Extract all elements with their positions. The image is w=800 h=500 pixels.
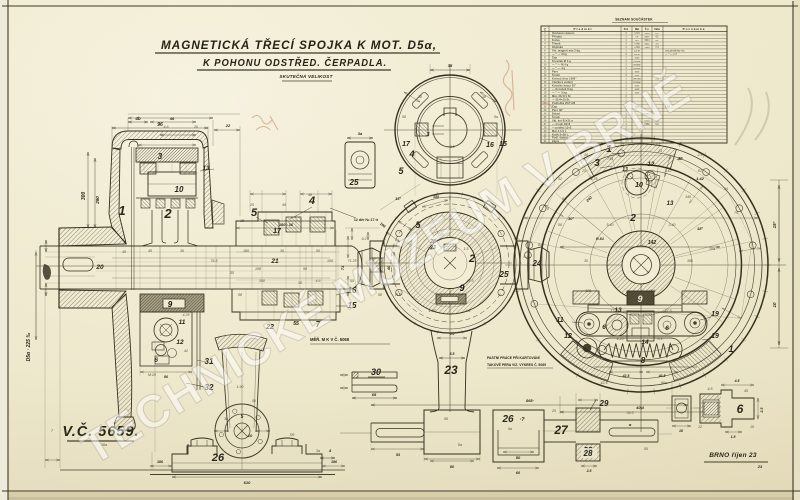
svg-text:180 - 36: 180 - 36: [279, 223, 294, 227]
svg-text:Podložka 25/7×28: Podložka 25/7×28: [552, 101, 576, 105]
svg-text:96: 96: [157, 122, 163, 128]
svg-text:mosaz: mosaz: [633, 65, 641, 67]
svg-text:feroda: feroda: [633, 79, 641, 81]
svg-text:10: 10: [635, 182, 643, 189]
svg-text:76.5: 76.5: [211, 259, 218, 263]
svg-text:34: 34: [724, 187, 728, 191]
svg-text:27: 27: [553, 423, 569, 437]
svg-text:13: 13: [667, 201, 674, 207]
svg-text:2.5: 2.5: [760, 408, 764, 414]
svg-text:65: 65: [372, 392, 377, 397]
svg-text:3: 3: [426, 132, 429, 138]
svg-text:290: 290: [95, 196, 100, 205]
svg-text:9: 9: [168, 300, 173, 309]
svg-text:610: 610: [244, 480, 251, 485]
svg-text:3.40: 3.40: [669, 223, 676, 227]
svg-text:2.25: 2.25: [590, 177, 598, 181]
svg-text:4.2: 4.2: [466, 309, 471, 313]
svg-text:Poč: Poč: [624, 28, 629, 31]
svg-text:300: 300: [81, 192, 87, 201]
svg-text:Kolečko hnací 30ʺ: Kolečko hnací 30ʺ: [552, 83, 577, 87]
svg-text:Objímka: Objímka: [552, 45, 563, 49]
svg-text:— ″ — M 4 g: — ″ — M 4 g: [552, 63, 569, 67]
svg-text:19: 19: [711, 333, 719, 340]
svg-text:6: 6: [665, 325, 669, 332]
svg-text:13: 13: [622, 167, 628, 173]
svg-text:1.42: 1.42: [696, 176, 705, 181]
svg-text:26: 26: [501, 414, 514, 425]
svg-text:50: 50: [316, 249, 320, 253]
svg-text:58: 58: [558, 223, 562, 227]
svg-text:Držad: Držad: [552, 111, 560, 115]
svg-text:6.4: 6.4: [658, 337, 663, 341]
svg-text:SEZNAM SOUČÁSTEK: SEZNAM SOUČÁSTEK: [615, 17, 653, 22]
svg-text:mosaz: mosaz: [633, 61, 641, 63]
svg-text:R.81: R.81: [596, 237, 604, 241]
svg-text:70: 70: [734, 211, 738, 215]
svg-text:40|4: 40|4: [635, 405, 645, 410]
svg-text:š litá: š litá: [634, 43, 640, 46]
svg-text:23: 23: [443, 363, 458, 377]
svg-text:Příruba: Příruba: [552, 35, 562, 39]
svg-text:BRNO říjen 23: BRNO říjen 23: [709, 452, 757, 459]
svg-text:4.5: 4.5: [734, 379, 740, 383]
svg-text:ocel: ocel: [635, 75, 640, 77]
svg-text:Předmět: Předmět: [573, 27, 592, 31]
svg-text:PASTNÍ PRÁCE PŘI KARTOVÁNÍ: PASTNÍ PRÁCE PŘI KARTOVÁNÍ: [487, 355, 541, 360]
svg-text:36.5: 36.5: [627, 411, 634, 415]
svg-text:17: 17: [402, 141, 411, 148]
svg-text:8a: 8a: [458, 443, 462, 447]
svg-text:12: 12: [698, 425, 702, 429]
svg-text:19: 19: [711, 311, 719, 318]
svg-text:4b: 4b: [134, 116, 141, 121]
svg-text:Vložka k vedení: Vložka k vedení: [552, 80, 573, 84]
svg-text:18°: 18°: [697, 226, 703, 231]
svg-text:1: 1: [728, 344, 733, 354]
svg-text:Fe l: Fe l: [635, 40, 639, 42]
svg-text:mosaz: mosaz: [633, 68, 641, 70]
svg-text:4: 4: [408, 149, 414, 159]
svg-text:— ″ — 3 kg: — ″ — 3 kg: [552, 52, 567, 56]
svg-text:Cu-dr: Cu-dr: [634, 51, 640, 53]
svg-text:ocel: ocel: [635, 72, 640, 74]
svg-text:4.5: 4.5: [656, 143, 661, 147]
svg-text:47.5: 47.5: [649, 289, 656, 293]
svg-text:15: 15: [499, 141, 507, 148]
svg-text:180: 180: [243, 249, 249, 253]
svg-text:12 děr № 17 tr: 12 děr № 17 tr: [354, 218, 379, 222]
svg-text:— ″ — 3 kg: — ″ — 3 kg: [552, 90, 567, 94]
svg-text:46: 46: [169, 116, 175, 121]
svg-text:Mat: Mat: [635, 28, 639, 31]
svg-text:20: 20: [193, 125, 198, 129]
svg-text:3a: 3a: [358, 131, 363, 136]
svg-text:2: 2: [629, 213, 636, 224]
svg-text:10: 10: [248, 433, 253, 438]
svg-text:55: 55: [644, 447, 648, 451]
svg-text:Č.v.: Č.v.: [645, 28, 650, 31]
svg-text:9.2: 9.2: [362, 237, 367, 241]
svg-text:ocel: ocel: [635, 58, 640, 60]
svg-text:Váha: Váha: [654, 29, 660, 31]
svg-text:6: 6: [602, 324, 606, 331]
svg-text:45: 45: [148, 249, 152, 253]
svg-text:Mat. 31/4×1 St: Mat. 31/4×1 St: [552, 94, 571, 98]
svg-text:95: 95: [444, 417, 448, 421]
svg-text:2: 2: [468, 253, 475, 265]
svg-text:36: 36: [280, 249, 284, 253]
svg-text:Vin. magnet min 2 kg: Vin. magnet min 2 kg: [552, 49, 580, 53]
svg-text:15°: 15°: [772, 221, 777, 228]
svg-text:D5α · 225 ‰: D5α · 225 ‰: [26, 333, 32, 362]
svg-text:4.5: 4.5: [708, 387, 713, 391]
svg-text:TAKOVÉ PERA VIZ. VÝKRES Č. 506: TAKOVÉ PERA VIZ. VÝKRES Č. 5069: [487, 362, 546, 367]
svg-text:Kotouč třecí 1500ʺ: Kotouč třecí 1500ʺ: [552, 77, 577, 81]
svg-text:47.5: 47.5: [467, 279, 474, 283]
svg-text:30: 30: [584, 259, 588, 263]
svg-text:2.8: 2.8: [697, 153, 703, 157]
svg-text:M.20: M.20: [148, 373, 156, 377]
svg-text:R2: R2: [698, 169, 702, 173]
svg-text:2: 2: [163, 206, 172, 221]
svg-text:30°: 30°: [568, 217, 574, 221]
svg-text:1.5: 1.5: [731, 435, 736, 439]
svg-text:26: 26: [211, 452, 225, 464]
svg-text:11: 11: [179, 319, 186, 326]
svg-text:9: 9: [637, 294, 642, 304]
svg-text:·?: ·?: [519, 417, 525, 423]
svg-text:12: 12: [564, 333, 572, 340]
svg-text:42.5: 42.5: [601, 381, 608, 385]
svg-text:36: 36: [180, 249, 184, 253]
svg-text:340: 340: [685, 195, 691, 199]
svg-text:0.4: 0.4: [524, 255, 529, 259]
svg-text:46: 46: [282, 203, 286, 207]
svg-text:20: 20: [95, 264, 104, 271]
svg-text:13: 13: [203, 166, 210, 172]
svg-text:6: 6: [737, 402, 744, 416]
svg-text:2.5: 2.5: [586, 469, 592, 473]
svg-text:28: 28: [583, 449, 593, 458]
svg-text:58: 58: [238, 293, 242, 297]
svg-text:5628: 5628: [644, 47, 650, 49]
svg-text:60a: 60a: [661, 381, 667, 385]
svg-text:6: 6: [154, 357, 158, 364]
svg-text:6a: 6a: [508, 427, 512, 431]
svg-text:MAGNETICKÁ TŘECÍ SPOJKA K MOT.: MAGNETICKÁ TŘECÍ SPOJKA K MOT. D5α,: [161, 39, 437, 52]
svg-text:186: 186: [157, 460, 164, 464]
svg-text:42: 42: [184, 349, 188, 353]
svg-text:47.5: 47.5: [665, 309, 672, 313]
svg-text:3a: 3a: [224, 417, 228, 421]
svg-text:Pero 38ʺ: Pero 38ʺ: [552, 108, 564, 112]
svg-text:4.6: 4.6: [164, 125, 169, 129]
svg-text:15: 15: [750, 425, 754, 429]
svg-text:16: 16: [486, 142, 494, 149]
svg-text:5614: 5614: [644, 39, 650, 42]
svg-text:360: 360: [687, 259, 693, 263]
svg-text:58: 58: [402, 115, 406, 119]
svg-text:1.42: 1.42: [665, 169, 672, 173]
svg-text:4.25: 4.25: [617, 337, 624, 341]
svg-text:10: 10: [772, 302, 777, 308]
svg-text:40.5: 40.5: [658, 374, 666, 378]
svg-text:108: 108: [255, 267, 261, 271]
svg-text:8: 8: [641, 356, 646, 365]
svg-text:5.0: 5.0: [450, 332, 455, 336]
svg-text:1: 1: [118, 203, 125, 218]
svg-text:50: 50: [516, 455, 521, 460]
svg-text:25: 25: [349, 178, 359, 187]
svg-text:Kotva: Kotva: [552, 38, 560, 42]
svg-text:12: 12: [648, 162, 655, 168]
svg-text:5.5: 5.5: [450, 352, 455, 356]
svg-text:12: 12: [176, 339, 184, 346]
svg-text:4.25: 4.25: [429, 309, 436, 313]
svg-text:— ″ — 4 g: — ″ — 4 g: [552, 66, 566, 70]
svg-text:11: 11: [556, 317, 563, 324]
svg-text:Ozubené rameno: Ozubené rameno: [552, 31, 575, 35]
svg-text:5.40: 5.40: [607, 223, 614, 227]
svg-text:13: 13: [658, 149, 662, 153]
svg-text:25: 25: [499, 270, 509, 279]
svg-text:50: 50: [252, 399, 256, 403]
svg-text:š 6.0: š 6.0: [634, 32, 640, 35]
svg-text:Cu-dr: Cu-dr: [634, 54, 640, 56]
svg-text:15: 15: [240, 219, 244, 223]
svg-text:55: 55: [230, 271, 234, 275]
svg-text:5a: 5a: [494, 115, 498, 119]
svg-text:21: 21: [270, 258, 279, 265]
svg-text:Pero: Pero: [552, 70, 558, 74]
svg-text:— Kroužek 8 kg: — Kroužek 8 kg: [552, 87, 573, 91]
svg-text:23: 23: [757, 464, 763, 469]
svg-text:5621: 5621: [644, 44, 650, 46]
svg-text:17: 17: [273, 228, 282, 235]
svg-text:45: 45: [744, 389, 748, 393]
svg-text:SR: SR: [290, 433, 295, 437]
svg-text:R.5: R.5: [395, 293, 400, 297]
svg-text:9: 9: [459, 283, 464, 293]
svg-text:425: 425: [585, 289, 591, 293]
svg-text:15°: 15°: [395, 196, 401, 201]
svg-text:5607: 5607: [644, 37, 650, 39]
svg-text:š litá: š litá: [634, 46, 640, 49]
svg-text:18: 18: [679, 429, 683, 433]
svg-text:3a: 3a: [316, 449, 320, 453]
svg-text:98: 98: [303, 267, 307, 271]
svg-text:186: 186: [331, 460, 338, 464]
svg-text:4.25: 4.25: [183, 313, 190, 317]
svg-text:SKUTEČNÁ VELIKOST: SKUTEČNÁ VELIKOST: [279, 72, 333, 79]
svg-text:K POHONU ODSTŘED. ČERPADLA.: K POHONU ODSTŘED. ČERPADLA.: [203, 56, 387, 69]
svg-text:— ″ — č 2: — ″ — č 2: [665, 53, 677, 56]
svg-text:Třmeň: Třmeň: [552, 42, 561, 46]
svg-text:42.5: 42.5: [622, 374, 630, 378]
svg-text:38: 38: [482, 95, 486, 99]
svg-text:3: 3: [158, 152, 163, 161]
svg-text:10: 10: [175, 185, 184, 194]
svg-text:22: 22: [225, 123, 231, 128]
svg-text:3.5: 3.5: [450, 145, 455, 149]
svg-text:865·: 865·: [526, 398, 535, 403]
svg-text:5600: 5600: [644, 33, 650, 35]
svg-text:Vál. kol 61×31-n: Vál. kol 61×31-n: [552, 118, 573, 122]
svg-text:48: 48: [308, 193, 312, 197]
svg-text:53: 53: [396, 453, 400, 457]
svg-text:8: 8: [547, 207, 549, 211]
svg-text:25: 25: [249, 203, 254, 207]
svg-text:— 31/4×10 St.: — 31/4×10 St.: [552, 97, 570, 101]
svg-text:142: 142: [648, 240, 657, 246]
svg-text:25: 25: [551, 409, 556, 413]
svg-text:Kroužek M 4 g: Kroužek M 4 g: [552, 59, 571, 63]
svg-text:35: 35: [448, 63, 453, 68]
svg-text:Poznámka: Poznámka: [683, 27, 706, 31]
svg-text:38: 38: [418, 95, 422, 99]
svg-text:40: 40: [676, 156, 683, 161]
svg-text:108: 108: [327, 259, 333, 263]
